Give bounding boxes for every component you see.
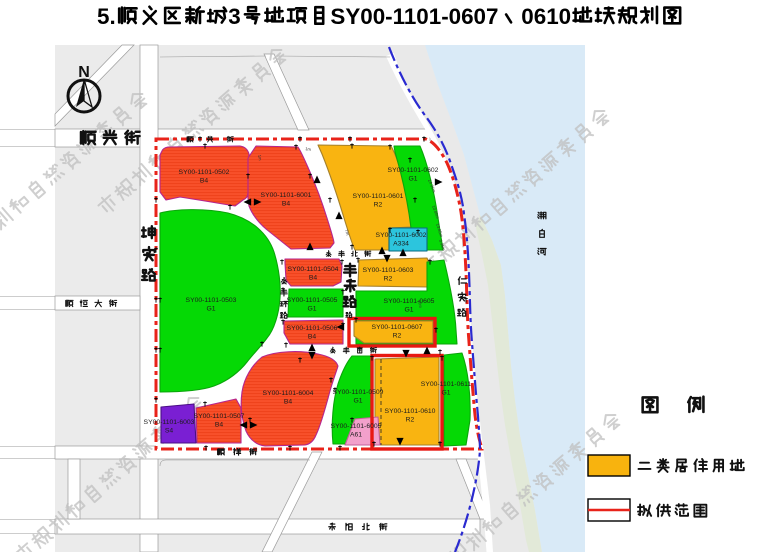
svg-text:A334: A334 <box>393 240 409 247</box>
svg-text:SY00-1101-0602: SY00-1101-0602 <box>388 167 439 174</box>
svg-text:R2: R2 <box>393 332 402 339</box>
svg-text:G1: G1 <box>408 175 417 182</box>
svg-text:B4: B4 <box>309 274 318 281</box>
svg-text:G1: G1 <box>441 389 450 396</box>
svg-text:S4: S4 <box>165 427 174 434</box>
svg-text:0610: 0610 <box>521 4 571 29</box>
svg-text:G1: G1 <box>404 306 413 313</box>
svg-text:SY00-1101-0601: SY00-1101-0601 <box>353 193 404 200</box>
svg-text:G1: G1 <box>206 305 215 312</box>
svg-text:SY00-1101-0607: SY00-1101-0607 <box>372 324 423 331</box>
svg-text:SY00-1101-0607: SY00-1101-0607 <box>330 4 498 29</box>
svg-text:SY00-1101-0611: SY00-1101-0611 <box>421 381 472 388</box>
svg-text:B4: B4 <box>282 200 291 207</box>
svg-text:SY00-1101-0503: SY00-1101-0503 <box>186 297 237 304</box>
svg-text:SY00-1101-0610: SY00-1101-0610 <box>385 408 436 415</box>
svg-text:SY00-1101-0506: SY00-1101-0506 <box>287 325 338 332</box>
svg-text:N: N <box>78 64 90 81</box>
svg-text:5.: 5. <box>97 4 116 29</box>
svg-text:B4: B4 <box>284 398 293 405</box>
svg-text:SY00-1101-6001: SY00-1101-6001 <box>261 192 312 199</box>
svg-text:SY00-1101-6004: SY00-1101-6004 <box>263 390 314 397</box>
svg-text:SY00-1101-0505: SY00-1101-0505 <box>287 297 338 304</box>
svg-text:SY00-1101-6002: SY00-1101-6002 <box>376 232 427 239</box>
svg-text:SY00-1101-0502: SY00-1101-0502 <box>179 169 230 176</box>
svg-text:3: 3 <box>228 4 240 29</box>
svg-text:R2: R2 <box>374 201 383 208</box>
svg-text:SY00-1101-6005: SY00-1101-6005 <box>331 423 382 430</box>
svg-text:SY00-1101-0605: SY00-1101-0605 <box>384 298 435 305</box>
svg-text:G1: G1 <box>353 397 362 404</box>
svg-text:R2: R2 <box>384 275 393 282</box>
svg-text:A61: A61 <box>350 431 362 438</box>
svg-text:SY00-1101-0603: SY00-1101-0603 <box>363 267 414 274</box>
svg-text:B4: B4 <box>308 333 317 340</box>
svg-text:G1: G1 <box>307 305 316 312</box>
svg-text:B4: B4 <box>215 421 224 428</box>
svg-text:SY00-1101-6003: SY00-1101-6003 <box>144 419 195 426</box>
svg-text:SY00-1101-0504: SY00-1101-0504 <box>288 266 339 273</box>
svg-text:B4: B4 <box>200 177 209 184</box>
svg-text:R2: R2 <box>406 416 415 423</box>
svg-text:SY00-1101-0507: SY00-1101-0507 <box>194 413 245 420</box>
svg-text:SY00-1101-0509: SY00-1101-0509 <box>333 389 384 396</box>
